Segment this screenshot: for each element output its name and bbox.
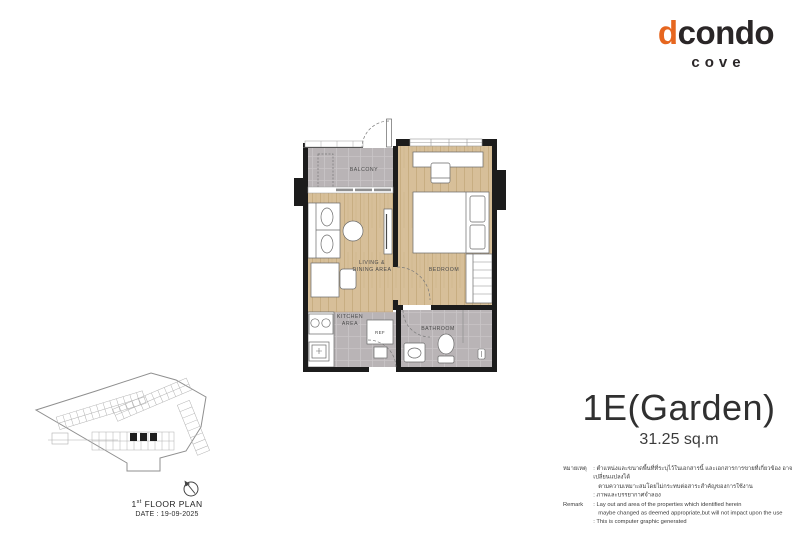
cabinet <box>374 347 387 358</box>
living-label-line2: DINING AREA <box>353 267 392 273</box>
toilet <box>438 334 454 363</box>
remark-text: maybe changed as deemed appropriate,but … <box>593 509 800 518</box>
floor-plan-date: DATE : 19-09-2025 <box>117 511 217 518</box>
bedroom-window <box>410 139 482 146</box>
remark-label <box>563 482 593 491</box>
kitchen-label-line1: KITCHEN <box>337 314 363 320</box>
garden-gate-leaf <box>387 119 392 147</box>
gate-swing-arc <box>362 121 389 148</box>
unit-title-block: 1E(Garden) 31.25 sq.m <box>572 388 786 449</box>
remark-row: : This is computer graphic generated <box>563 518 800 527</box>
remark-label-thai: หมายเหตุ <box>563 464 593 482</box>
remark-row: maybe changed as deemed appropriate,but … <box>563 509 800 518</box>
floor-plan-text: FLOOR PLAN <box>145 499 203 509</box>
brand-subtitle: cove <box>640 55 792 70</box>
remark-text: : Lay out and area of the properties whi… <box>593 500 800 509</box>
brand-rest: condo <box>678 14 774 51</box>
ref-label: REF <box>375 330 385 335</box>
remark-row: ตามความเหมาะสมโดยไม่กระทบต่อสาระสำคัญของ… <box>563 482 800 491</box>
remark-text: : This is computer graphic generated <box>593 518 800 527</box>
column-right <box>492 170 506 210</box>
remark-label <box>563 509 593 518</box>
brand-wordmark: dcondo <box>640 16 792 49</box>
site-plan <box>30 368 216 498</box>
doorway-floor <box>393 267 398 303</box>
bathroom-label: BATHROOM <box>421 326 455 332</box>
remark-label-english: Remark <box>563 500 593 509</box>
remarks-block: หมายเหตุ : ตำแหน่งและขนาดพื้นที่ที่ระบุไ… <box>563 464 800 526</box>
highlighted-units <box>130 433 157 441</box>
remark-row: : ภาพและบรรยากาศจำลอง <box>563 491 800 500</box>
stove <box>309 314 333 334</box>
remark-text: : ภาพและบรรยากาศจำลอง <box>593 491 800 500</box>
kitchen-sink <box>309 342 329 361</box>
bathroom-basin <box>404 343 425 362</box>
sofa <box>308 203 340 258</box>
sliding-door <box>308 187 393 193</box>
brand-d: d <box>658 14 678 51</box>
remark-label <box>563 518 593 527</box>
siteplan-caption: 1stFLOOR PLAN DATE : 19-09-2025 <box>117 499 217 518</box>
tv-unit <box>384 209 392 254</box>
remark-text: : ตำแหน่งและขนาดพื้นที่ที่ระบุไว้ในเอกสา… <box>593 464 800 482</box>
living-label-line1: LIVING & <box>359 260 385 266</box>
bed <box>413 192 489 253</box>
floor-plan-title: 1stFLOOR PLAN <box>117 499 217 509</box>
brochure-page: dcondo cove <box>0 0 800 533</box>
unit-area: 31.25 sq.m <box>572 431 786 449</box>
unit-floor-plan: BALCONY LIVING & DINING AREA BEDROOM KIT… <box>293 113 511 379</box>
bedroom-label: BEDROOM <box>429 267 459 273</box>
wardrobe <box>466 254 492 303</box>
floor-ordinal: st <box>137 499 142 505</box>
dining-table <box>343 221 363 241</box>
column-left <box>294 178 307 206</box>
unit-name: 1E(Garden) <box>572 388 786 428</box>
remark-row: Remark : Lay out and area of the propert… <box>563 500 800 509</box>
kitchen-label-line2: AREA <box>342 321 358 327</box>
remark-row: หมายเหตุ : ตำแหน่งและขนาดพื้นที่ที่ระบุไ… <box>563 464 800 482</box>
remark-text: ตามความเหมาะสมโดยไม่กระทบต่อสาระสำคัญของ… <box>593 482 800 491</box>
balcony-label: BALCONY <box>350 167 378 173</box>
remark-label <box>563 491 593 500</box>
brand-logo: dcondo cove <box>640 16 792 70</box>
north-arrow-icon <box>184 481 198 497</box>
shower-drain-icon <box>478 349 485 359</box>
balcony-parapet <box>303 141 363 148</box>
